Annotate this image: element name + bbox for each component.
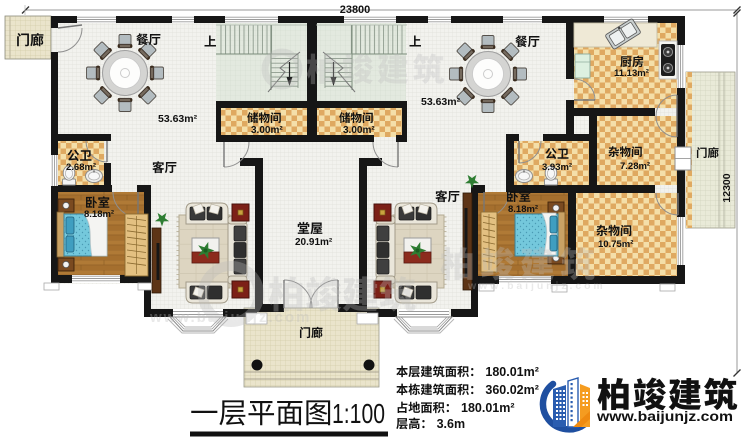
svg-text:10.75m²: 10.75m²	[598, 239, 633, 250]
svg-text:12300: 12300	[721, 173, 733, 202]
svg-text:8.18m²: 8.18m²	[84, 209, 114, 220]
svg-text:53.63m²: 53.63m²	[421, 96, 461, 108]
svg-text:www.baijunjz.com: www.baijunjz.com	[149, 309, 311, 326]
svg-text:2.68m²: 2.68m²	[66, 162, 96, 173]
svg-text:53.63m²: 53.63m²	[158, 113, 198, 125]
svg-text:23800: 23800	[340, 4, 371, 16]
svg-text:1:100: 1:100	[332, 398, 385, 429]
svg-text:3.6m: 3.6m	[437, 417, 466, 431]
svg-text:3.00m²: 3.00m²	[343, 125, 375, 136]
svg-text:8.18m²: 8.18m²	[508, 204, 538, 215]
svg-text:20.91m²: 20.91m²	[295, 237, 333, 248]
svg-text:www.baijunjz.com: www.baijunjz.com	[596, 409, 733, 424]
svg-text:3.93m²: 3.93m²	[542, 162, 572, 173]
svg-text:360.02m²: 360.02m²	[485, 383, 539, 397]
svg-text:180.01m²: 180.01m²	[461, 401, 515, 415]
svg-text:3.00m²: 3.00m²	[251, 125, 283, 136]
svg-text:180.01m²: 180.01m²	[485, 365, 539, 379]
svg-text:w w w . b a i j u n j z . c o: w w w . b a i j u n j z . c o m	[467, 280, 603, 292]
svg-text:7.28m²: 7.28m²	[620, 161, 650, 172]
svg-text:11.13m²: 11.13m²	[614, 68, 649, 79]
